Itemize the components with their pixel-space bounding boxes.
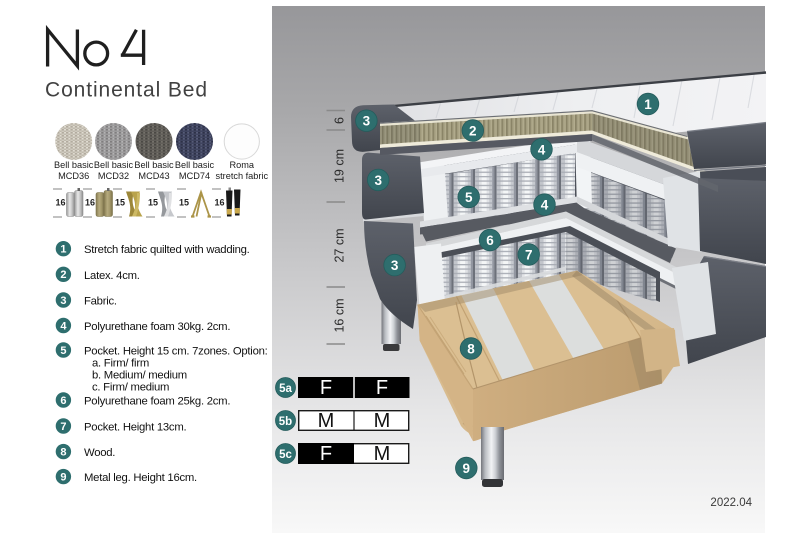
svg-text:6: 6: [60, 395, 66, 407]
svg-text:6: 6: [333, 117, 347, 124]
svg-text:5b: 5b: [279, 416, 292, 428]
svg-text:16: 16: [85, 198, 95, 208]
svg-text:b. Medium/ medium: b. Medium/ medium: [92, 369, 187, 381]
svg-text:Stretch fabric quilted with wa: Stretch fabric quilted with wadding.: [84, 244, 250, 256]
svg-text:Bell basic: Bell basic: [134, 160, 174, 170]
svg-text:4: 4: [538, 142, 546, 157]
svg-text:Polyurethane foam 25kg. 2cm.: Polyurethane foam 25kg. 2cm.: [84, 396, 230, 408]
svg-text:F: F: [376, 377, 388, 399]
svg-text:27 cm: 27 cm: [333, 228, 347, 262]
svg-text:2022.04: 2022.04: [710, 497, 752, 509]
svg-text:Pocket. Height 13cm.: Pocket. Height 13cm.: [84, 422, 186, 434]
svg-text:c. Firm/ medium: c. Firm/ medium: [92, 381, 169, 393]
svg-text:MCD32: MCD32: [98, 171, 129, 181]
svg-text:5a: 5a: [279, 383, 292, 395]
svg-text:Continental Bed: Continental Bed: [45, 79, 208, 102]
svg-text:16: 16: [214, 198, 224, 208]
svg-text:1: 1: [60, 244, 66, 256]
svg-text:3: 3: [374, 173, 382, 188]
svg-text:8: 8: [467, 342, 475, 357]
svg-text:Latex. 4cm.: Latex. 4cm.: [84, 270, 140, 282]
svg-text:1: 1: [644, 97, 652, 112]
svg-text:15: 15: [115, 198, 125, 208]
svg-text:F: F: [320, 443, 332, 465]
svg-text:Bell basic: Bell basic: [175, 160, 215, 170]
svg-text:F: F: [320, 377, 332, 399]
svg-text:16: 16: [55, 198, 65, 208]
svg-text:Pocket. Height 15 cm. 7zones.: Pocket. Height 15 cm. 7zones. Option:: [84, 346, 268, 358]
svg-text:5c: 5c: [279, 449, 292, 461]
svg-text:M: M: [374, 443, 391, 465]
svg-text:4: 4: [60, 320, 67, 332]
svg-text:3: 3: [391, 258, 399, 273]
svg-text:Bell basic: Bell basic: [94, 160, 134, 170]
svg-text:Metal leg. Height 16cm.: Metal leg. Height 16cm.: [84, 472, 197, 484]
svg-text:15: 15: [179, 198, 189, 208]
svg-text:16 cm: 16 cm: [333, 298, 347, 332]
svg-text:M: M: [374, 410, 391, 432]
svg-text:2: 2: [60, 269, 66, 281]
svg-text:Wood.: Wood.: [84, 447, 115, 459]
svg-text:Bell basic: Bell basic: [54, 160, 94, 170]
svg-text:9: 9: [60, 472, 66, 484]
svg-text:15: 15: [148, 198, 158, 208]
svg-text:2: 2: [469, 124, 477, 139]
svg-text:5: 5: [465, 190, 473, 205]
svg-text:Roma: Roma: [230, 160, 255, 170]
svg-text:19 cm: 19 cm: [333, 149, 347, 183]
svg-text:MCD74: MCD74: [179, 171, 210, 181]
svg-text:M: M: [318, 410, 335, 432]
svg-text:6: 6: [486, 233, 494, 248]
svg-text:4: 4: [541, 198, 549, 213]
svg-text:3: 3: [60, 295, 66, 307]
svg-text:stretch fabric: stretch fabric: [216, 171, 269, 181]
svg-text:MCD43: MCD43: [138, 171, 169, 181]
svg-text:a. Firm/ firm: a. Firm/ firm: [92, 357, 149, 369]
svg-text:3: 3: [363, 114, 371, 129]
svg-text:9: 9: [463, 461, 471, 476]
svg-text:7: 7: [60, 421, 66, 433]
svg-text:8: 8: [60, 447, 66, 459]
svg-text:7: 7: [525, 248, 533, 263]
svg-text:MCD36: MCD36: [58, 171, 89, 181]
svg-text:Fabric.: Fabric.: [84, 296, 117, 308]
svg-text:Polyurethane foam 30kg. 2cm.: Polyurethane foam 30kg. 2cm.: [84, 321, 230, 333]
svg-text:5: 5: [60, 345, 66, 357]
